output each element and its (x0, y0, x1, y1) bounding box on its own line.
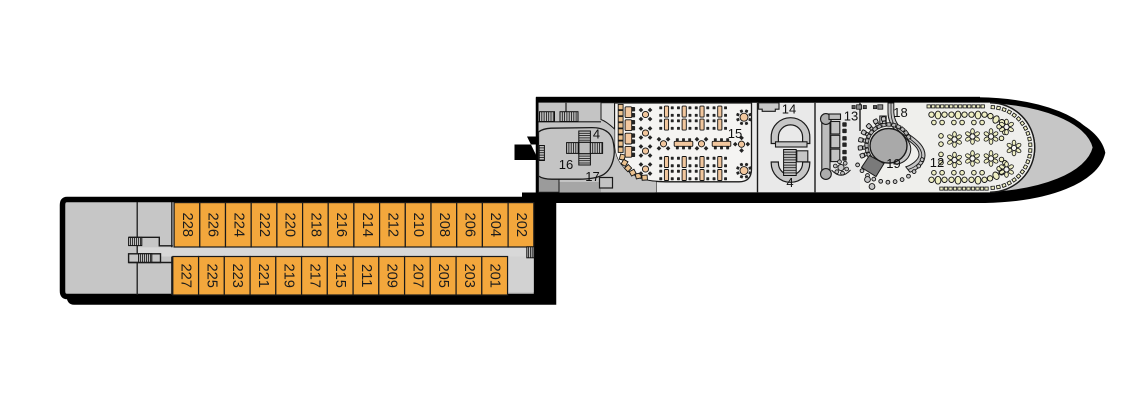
svg-text:14: 14 (782, 101, 796, 116)
svg-text:15: 15 (728, 126, 742, 141)
svg-text:212: 212 (385, 213, 401, 238)
svg-text:4: 4 (786, 175, 793, 190)
svg-text:17: 17 (585, 169, 599, 184)
svg-text:226: 226 (205, 213, 221, 238)
svg-text:208: 208 (436, 213, 452, 238)
svg-text:18: 18 (893, 105, 907, 120)
svg-text:209: 209 (384, 263, 400, 288)
svg-text:224: 224 (230, 213, 246, 238)
svg-text:201: 201 (487, 263, 503, 288)
svg-text:19: 19 (886, 156, 900, 171)
svg-text:207: 207 (409, 263, 425, 288)
svg-text:211: 211 (358, 264, 374, 287)
svg-text:214: 214 (359, 213, 375, 238)
svg-text:12: 12 (930, 155, 944, 170)
svg-text:227: 227 (178, 263, 194, 288)
svg-text:218: 218 (307, 213, 323, 238)
svg-text:222: 222 (256, 213, 272, 238)
svg-text:216: 216 (333, 213, 349, 238)
svg-text:205: 205 (435, 263, 451, 288)
svg-text:215: 215 (332, 263, 348, 288)
svg-text:206: 206 (462, 213, 478, 238)
svg-text:221: 221 (255, 263, 271, 288)
svg-text:217: 217 (306, 263, 322, 288)
svg-text:219: 219 (281, 263, 297, 288)
svg-text:220: 220 (282, 213, 298, 238)
svg-text:225: 225 (203, 263, 219, 288)
svg-text:13: 13 (844, 109, 858, 124)
svg-text:202: 202 (513, 213, 529, 238)
svg-text:204: 204 (487, 213, 503, 238)
svg-text:228: 228 (179, 213, 195, 238)
svg-text:16: 16 (559, 157, 573, 172)
svg-text:4: 4 (593, 127, 600, 142)
svg-text:223: 223 (229, 263, 245, 288)
svg-text:203: 203 (461, 263, 477, 288)
svg-text:210: 210 (410, 213, 426, 238)
